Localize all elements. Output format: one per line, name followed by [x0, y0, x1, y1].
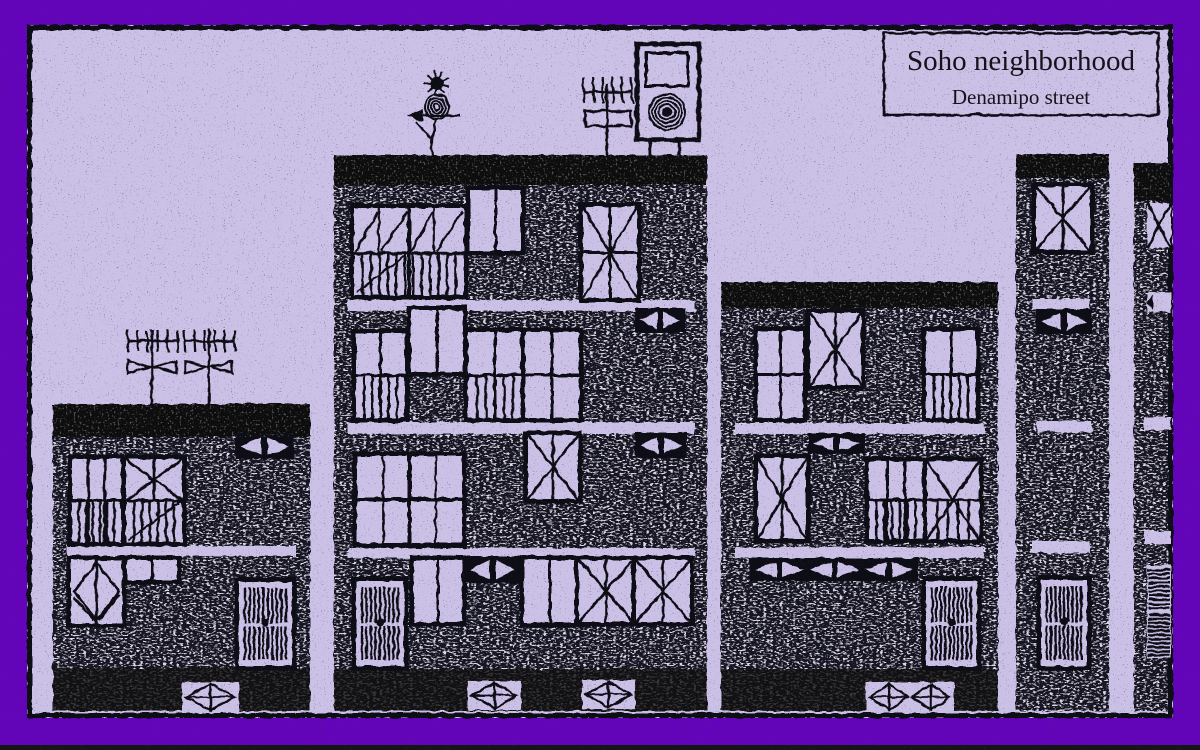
- svg-text:Denamipo street: Denamipo street: [952, 85, 1090, 109]
- svg-text:Soho neighborhood: Soho neighborhood: [907, 45, 1135, 77]
